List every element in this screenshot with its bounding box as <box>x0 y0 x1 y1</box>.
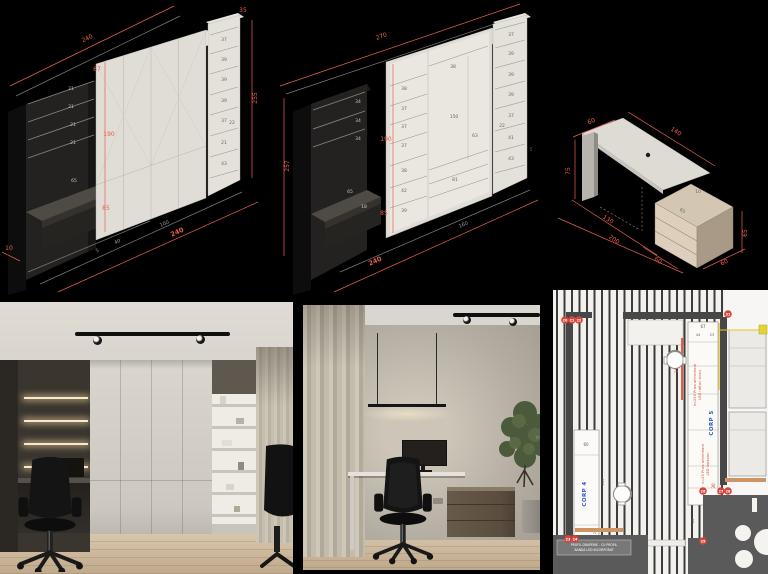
decor-object <box>226 484 234 490</box>
dim-label: 40 <box>113 238 121 246</box>
dim-label: 10 <box>5 245 13 252</box>
dim-label: 37 <box>401 106 407 112</box>
dim-label: 39 <box>221 57 227 63</box>
spot-light <box>93 336 102 345</box>
dim-label: 140 <box>669 126 683 138</box>
dim-label: 43 <box>508 156 514 162</box>
dim-label: 41 <box>508 135 514 141</box>
dim-label: 100 <box>159 219 170 228</box>
pendant-cord <box>436 333 437 405</box>
dim-label: 34 <box>355 118 361 124</box>
dim-label: 190 <box>103 131 115 138</box>
dim-label: 200 <box>601 479 605 486</box>
dim-label: 60 <box>653 256 663 266</box>
dim-label: 21 <box>68 86 74 92</box>
dim-label: 85 <box>380 210 388 217</box>
dim-label: 37 <box>401 124 407 130</box>
door-gap <box>120 360 121 534</box>
drawer-line <box>447 504 515 505</box>
dim-label: 150 <box>450 114 459 120</box>
dim-label: 200 <box>607 234 621 246</box>
pendant-glow <box>361 406 453 422</box>
floor-plan: 67 44 23 CORP 5 h=220 Priza alimentare L… <box>553 290 768 574</box>
desk-leg <box>350 476 354 550</box>
dim-label: 60 <box>719 258 729 268</box>
decor-object <box>222 440 232 446</box>
curtain-profile-strip <box>725 478 766 482</box>
marker-number: 27 <box>719 489 724 493</box>
office-chair-partial <box>260 442 293 574</box>
note-led-dulap: h=25 Priza alimentare <box>701 443 705 484</box>
chair-base <box>376 544 430 560</box>
marker-number: 24 <box>573 537 578 541</box>
dim-label: 30 <box>711 483 716 489</box>
office-chair <box>367 447 439 569</box>
curtain-profile-strip <box>575 528 623 532</box>
track-light-bar <box>75 332 230 336</box>
dim-label: 42 <box>401 188 407 194</box>
dim-label: 10 <box>695 189 701 195</box>
dim-label: 34 <box>355 99 361 105</box>
marker-number: 22 <box>577 318 582 322</box>
dim-right: 255 <box>252 20 259 178</box>
dim-label: 38 <box>401 86 407 92</box>
dim-label: 43 <box>221 161 227 167</box>
dim-label: 60 <box>587 117 597 126</box>
dim-label: 75 <box>565 167 572 175</box>
dim-label: 39 <box>221 77 227 83</box>
dim-label: 240 <box>81 33 95 44</box>
corp4-label: CORP 4 <box>582 481 588 506</box>
marker-number: 29 <box>701 539 706 543</box>
open-shelf-unit <box>212 360 256 524</box>
cable-grommet <box>646 153 650 157</box>
dim-label: 257 <box>284 160 291 172</box>
dim-label: 240 <box>169 226 185 239</box>
dim-label: 160 <box>458 220 469 229</box>
marker-number: 28 <box>726 489 731 493</box>
dim-label: 28 <box>691 519 695 523</box>
desk-axonometric-drawing: 10 65 60 140 75 130 200 60 60 65 <box>545 95 768 296</box>
adjacent-furniture <box>729 330 766 476</box>
open-shelf-column: 37 39 39 39 37 41 43 22 5 <box>493 13 533 194</box>
chair-circle <box>735 525 751 541</box>
dim-label: 38 <box>401 168 407 174</box>
dim-label: 37 <box>221 37 227 43</box>
design-board: 240 21 21 21 21 65 <box>0 0 768 574</box>
dim-label: 37 <box>401 143 407 149</box>
dim-label: 21 <box>70 140 76 146</box>
dim-label: 60 <box>583 442 589 447</box>
shelf <box>212 492 256 495</box>
shelf <box>212 448 256 451</box>
marker-number: 20 <box>563 318 568 322</box>
door-gap <box>182 360 183 534</box>
spot-light <box>463 316 471 324</box>
dim-label: 38 <box>450 64 456 70</box>
dim-label: 22 <box>229 120 235 126</box>
dim-label: 37 <box>508 113 514 119</box>
note-led-birou: LED rafturi birou <box>698 370 702 400</box>
render-office-wardrobe <box>0 302 293 574</box>
marker-number: 21 <box>570 318 575 322</box>
chair-circle <box>735 550 753 568</box>
dim-label: 81 <box>452 177 458 183</box>
dim-label: 18 <box>361 204 367 210</box>
dim-label: 37 <box>508 32 514 38</box>
dim-label: 39 <box>508 51 514 57</box>
dim-label: 65 <box>742 229 749 237</box>
drawer-line <box>447 520 515 521</box>
backlit-shelf <box>24 443 88 445</box>
plant-pot <box>522 500 540 533</box>
dim-label: 65 <box>347 189 353 195</box>
render-office-desk <box>303 305 540 570</box>
office-chair <box>10 454 90 572</box>
dim-label: 21 <box>70 122 76 128</box>
dim-label: 65 <box>71 178 77 184</box>
marker-number: 26 <box>701 489 706 493</box>
dim-label: 63 <box>472 133 478 139</box>
dim-label: 85 <box>102 205 110 212</box>
dim-label: 39 <box>508 72 514 78</box>
potted-plant <box>495 391 540 503</box>
spot-light <box>509 318 517 326</box>
shelf <box>212 514 256 517</box>
dim-label: 240 <box>367 255 383 268</box>
marker-number: 23 <box>566 537 571 541</box>
shelf <box>212 426 256 429</box>
dim-label: 255 <box>252 92 259 104</box>
pendant-cord <box>377 333 378 405</box>
dim-label: 44 <box>696 333 701 337</box>
dim-label: 67 <box>700 324 706 329</box>
shelf <box>212 404 256 407</box>
dim-label: 190 <box>380 136 392 143</box>
dim-label: 67 <box>93 66 101 73</box>
backlit-shelf <box>24 397 88 399</box>
dim-label: 37 <box>221 118 227 124</box>
dim-left: 257 <box>284 98 291 256</box>
note-led-dulap: LED dulapuri <box>706 453 710 476</box>
dim-label: 5 <box>95 248 100 255</box>
dim-label: 21 <box>221 140 227 146</box>
shelf-unit-top <box>212 360 256 394</box>
dim-label: 23 <box>710 333 714 337</box>
dim-label: 39 <box>508 92 514 98</box>
open-shelf-column: 37 39 39 39 37 21 43 22 35 <box>206 7 247 196</box>
corp5-label: CORP 5 <box>709 410 715 435</box>
profil-label: PROFIL DRAPERIE - CU PROFIL <box>571 543 618 547</box>
decor-object <box>220 396 226 404</box>
curtain <box>303 305 365 557</box>
construction-lines <box>600 187 642 231</box>
wardrobe-closed-axonometric-drawing: 240 21 21 21 21 65 <box>0 0 272 296</box>
note-led-birou: h=220 Priza alimentare <box>693 363 697 406</box>
dim-label: 35 <box>239 7 247 14</box>
profil-label: BANDA LED INCORPORAT <box>574 548 613 552</box>
dim-label: 21 <box>68 104 74 110</box>
decor-object <box>236 418 244 424</box>
dim-label: 5 <box>530 147 533 153</box>
shelf <box>212 470 256 473</box>
dim-label: 130 <box>601 214 615 226</box>
spot-light <box>196 335 205 344</box>
dim-label: 39 <box>401 208 407 214</box>
drawer-unit: 10 65 <box>655 184 733 268</box>
dim-label: 34 <box>355 136 361 142</box>
decor-object <box>234 506 240 512</box>
door-gap <box>151 360 152 534</box>
wardrobe-front <box>90 360 212 534</box>
marker-number: 31 <box>726 312 731 316</box>
dim-label: 270 <box>375 31 388 42</box>
backlit-shelf <box>24 420 88 422</box>
decor-object <box>238 462 244 470</box>
dim-label: 22 <box>499 123 505 129</box>
wardrobe-open-axonometric-drawing: 270 257 34 34 34 65 18 <box>278 0 546 296</box>
desk-plan <box>628 320 683 345</box>
dim-label: 39 <box>221 98 227 104</box>
chair-base <box>21 552 80 570</box>
door-gap <box>90 480 212 481</box>
